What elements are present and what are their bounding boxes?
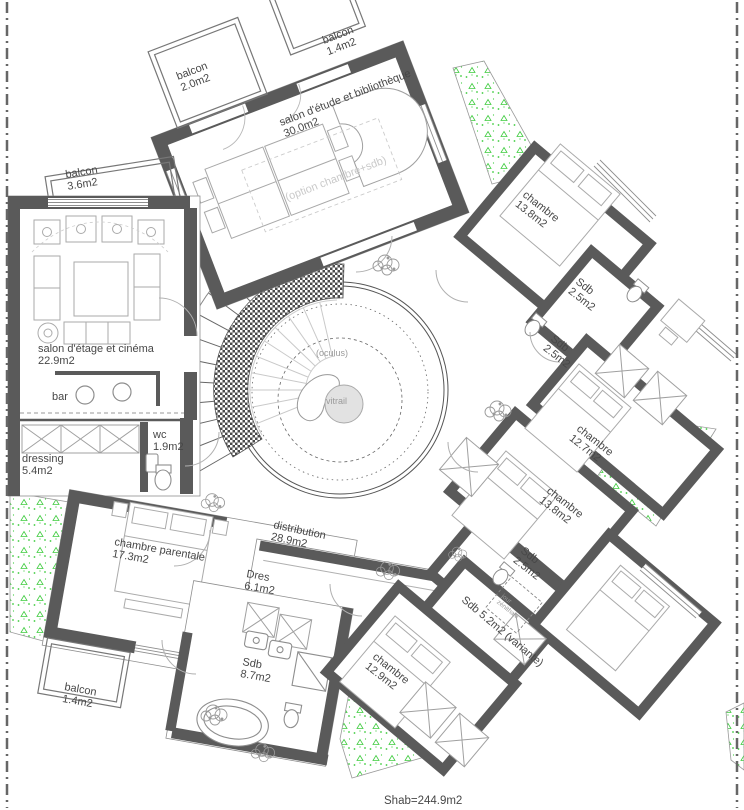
label-balcon-top-right: balcon1.4m2 xyxy=(321,24,360,58)
green-area-east-edge xyxy=(726,703,744,770)
wall-west xyxy=(8,196,20,496)
floor-plan-drawing: balcon2.0m2balcon1.4m2salon d'étude et b… xyxy=(0,0,744,810)
label-bar: bar xyxy=(52,391,68,403)
label-vitrail: vitrail xyxy=(326,396,347,406)
label-oculus: (oculus) xyxy=(316,348,348,358)
label-balcon-west: balcon3.6m2 xyxy=(65,164,101,193)
floor-plan-page: balcon2.0m2balcon1.4m2salon d'étude et b… xyxy=(0,0,744,810)
label-balcon-top-left: balcon2.0m2 xyxy=(175,60,214,94)
label-balcon-sud: balcon1.4m2 xyxy=(61,681,97,710)
label-shab-total: Shab=244.9m2 xyxy=(384,795,462,807)
